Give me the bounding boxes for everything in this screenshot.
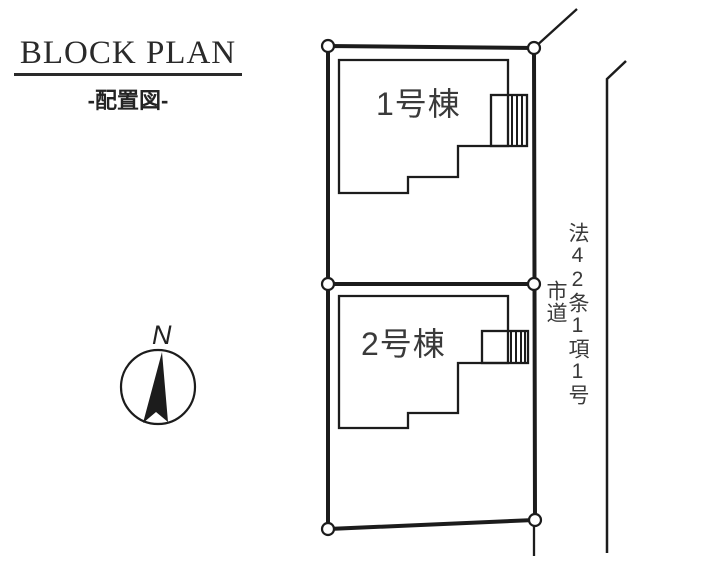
site-plan-drawing (0, 0, 728, 569)
road-classification-label: 法42条1項1号 (567, 222, 588, 406)
corner-marker (322, 523, 334, 535)
corner-marker (528, 278, 540, 290)
building-2-porch-hatch (511, 331, 525, 363)
building-2-label: 2号棟 (361, 328, 446, 360)
corner-marker (322, 40, 334, 52)
road-type-label: 市道 (545, 280, 566, 324)
corner-marker (528, 42, 540, 54)
corner-marker (322, 278, 334, 290)
road-right-boundary (607, 61, 626, 553)
compass-needle-icon (143, 352, 168, 423)
north-label: N (152, 322, 172, 349)
building-1-label: 1号棟 (376, 88, 461, 120)
road-left-top-diagonal (534, 9, 577, 48)
building-1-outline (339, 60, 508, 193)
corner-marker (529, 514, 541, 526)
page-title: BLOCK PLAN (14, 37, 242, 76)
block-plan-canvas: BLOCK PLAN -配置図- 1号棟 2号棟 法42条1項1号 市道 N (0, 0, 728, 569)
building-1-porch-hatch (512, 95, 522, 146)
page-subtitle: -配置図- (14, 90, 242, 112)
